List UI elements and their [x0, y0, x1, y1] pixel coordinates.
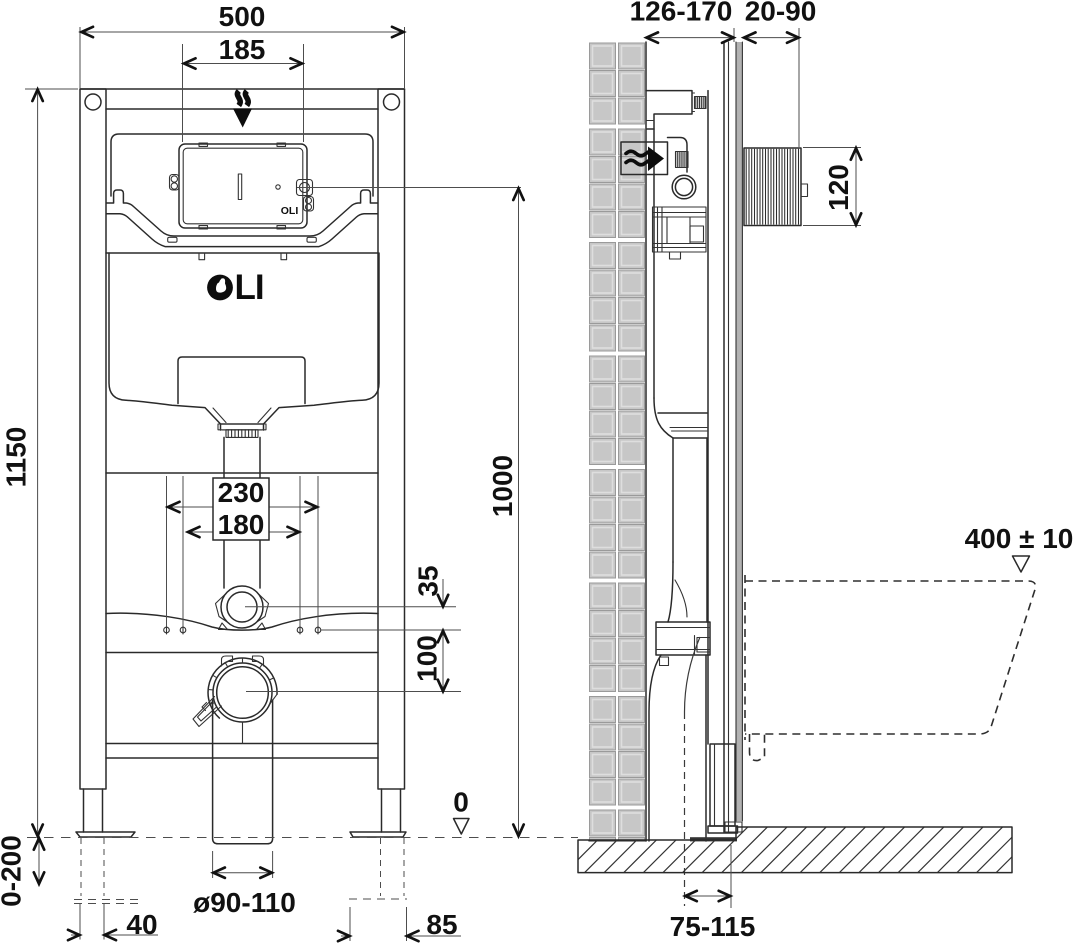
svg-text:180: 180: [218, 509, 265, 540]
svg-text:ø90-110: ø90-110: [193, 887, 296, 918]
svg-text:OLI: OLI: [281, 205, 299, 217]
svg-text:LI: LI: [235, 268, 264, 307]
svg-text:185: 185: [219, 34, 266, 65]
svg-text:20-90: 20-90: [745, 0, 817, 27]
svg-text:1000: 1000: [487, 455, 518, 517]
svg-text:126-170: 126-170: [630, 0, 733, 27]
svg-text:1150: 1150: [1, 427, 32, 488]
svg-text:120: 120: [823, 164, 854, 211]
svg-text:0: 0: [453, 787, 469, 818]
svg-text:100: 100: [412, 635, 443, 682]
svg-text:230: 230: [218, 477, 265, 508]
svg-text:400 ± 10: 400 ± 10: [965, 523, 1074, 554]
svg-text:0-200: 0-200: [0, 835, 27, 907]
svg-text:35: 35: [413, 565, 444, 596]
svg-text:75-115: 75-115: [670, 911, 756, 942]
svg-text:500: 500: [219, 1, 266, 32]
svg-text:40: 40: [126, 909, 157, 940]
svg-text:85: 85: [426, 909, 457, 940]
